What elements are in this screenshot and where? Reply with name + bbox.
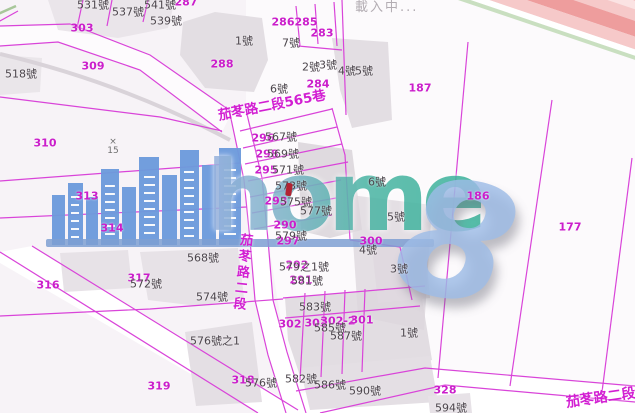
loading-indicator-text: 載入中... <box>355 0 418 15</box>
survey-marker: × 15 <box>103 138 123 155</box>
map-viewport[interactable]: home 8 287303309288286285283284187310313… <box>0 0 635 413</box>
map-graphics <box>0 0 635 413</box>
survey-marker-value: 15 <box>103 147 123 156</box>
